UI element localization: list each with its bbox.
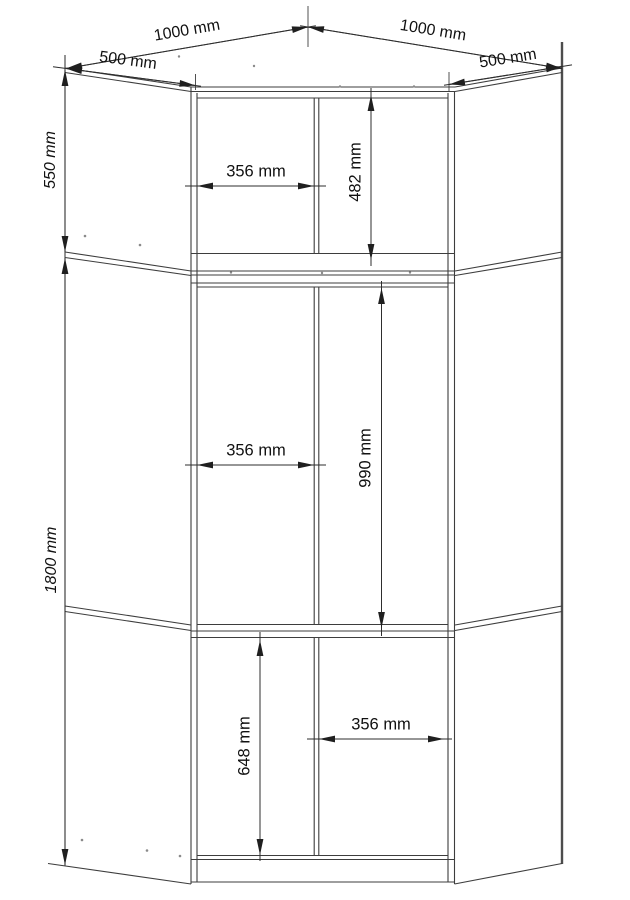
dimension-label-upper-door-width: 356 mm (226, 162, 286, 180)
left-panel-band2-outer (65, 606, 191, 625)
dimension-label-side-depth-left: 500 mm (98, 49, 158, 73)
dimension-label-upper-section-height: 550 mm (42, 131, 59, 189)
right-panel-bottom-edge (455, 864, 563, 885)
right-panel-top-edge-outer (455, 68, 562, 87)
technical-drawing-canvas: 1000 mm1000 mm500 mm500 mm550 mm1800 mm3… (0, 0, 630, 900)
right-panel-band2-outer (455, 606, 562, 625)
right-panel-band1-outer (455, 252, 562, 271)
left-panel-band1-outer (65, 252, 191, 271)
left-panel-band2-inner (65, 612, 191, 631)
dimension-lines (53, 26, 572, 865)
dimension-label-upper-inner-height: 482 mm (346, 142, 364, 202)
dimension-label-middle-inner-height: 990 mm (356, 428, 374, 488)
right-panel-band2-inner (455, 612, 562, 631)
dimension-label-lower-section-height: 1800 mm (43, 527, 60, 594)
dimension-label-middle-door-width: 356 mm (226, 441, 286, 459)
dimension-label-bottom-inner-height: 648 mm (235, 716, 253, 776)
left-panel-band1-inner (65, 258, 191, 276)
right-panel-band1-inner (455, 258, 562, 276)
dimension-label-side-depth-right: 500 mm (478, 46, 538, 72)
cabinet-outline (48, 42, 562, 884)
dimension-label-bottom-door-width: 356 mm (351, 715, 411, 733)
left-panel-bottom-edge (48, 864, 191, 885)
dimension-labels: 1000 mm1000 mm500 mm500 mm550 mm1800 mm3… (42, 17, 538, 776)
wardrobe-dimension-diagram: 1000 mm1000 mm500 mm500 mm550 mm1800 mm3… (0, 0, 630, 900)
dimension-label-top-width-right: 1000 mm (399, 17, 468, 45)
dimension-label-top-width-left: 1000 mm (153, 17, 222, 45)
